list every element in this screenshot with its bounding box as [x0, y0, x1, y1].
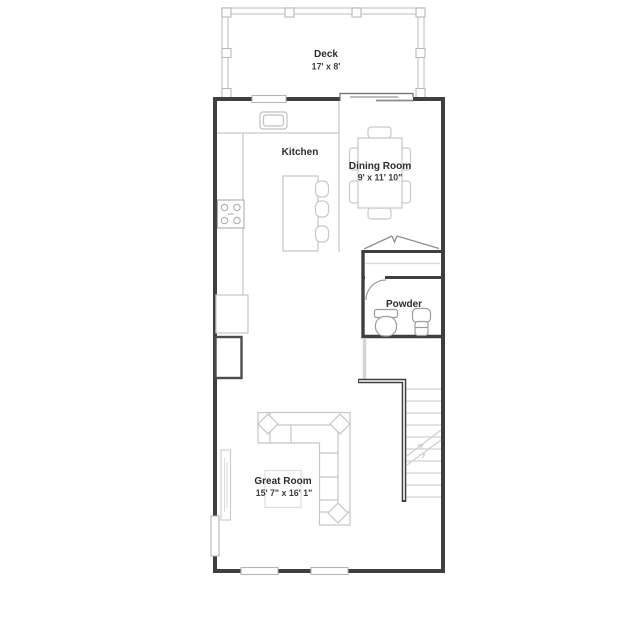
window-top [252, 96, 286, 103]
window-bottom-2 [311, 568, 348, 575]
powder-label: Powder [386, 299, 422, 310]
closet-doors [364, 236, 439, 249]
sliding-door [340, 94, 413, 102]
kitchen-island [283, 176, 318, 251]
toilet [375, 310, 398, 337]
great-room-label: Great Room [254, 476, 311, 487]
refrigerator [216, 295, 248, 333]
dining-label: Dining Room [349, 161, 411, 172]
stairs [358, 381, 441, 502]
powder-door-swing [366, 280, 386, 300]
pantry-closet [216, 337, 242, 378]
kitchen-counters [217, 101, 339, 295]
dining-chair [350, 181, 359, 203]
deck-dims: 17' x 8' [312, 62, 341, 72]
dining-chair [368, 208, 391, 219]
stair-direction-lines [407, 430, 441, 465]
floor-plan: Deck 17' x 8' Kitchen Dining Room 9' x 1… [0, 0, 640, 640]
dining-dims: 9' x 11' 10" [358, 173, 403, 183]
floor-plan-drawing: Deck 17' x 8' Kitchen Dining Room 9' x 1… [0, 0, 640, 640]
deck-label: Deck [314, 49, 338, 60]
window-left [211, 516, 219, 556]
stair-wall [358, 381, 404, 502]
media-console [221, 450, 231, 520]
dining-chair [368, 127, 391, 138]
great-room-dims: 15' 7" x 16' 1" [256, 488, 313, 498]
dining-chair [402, 181, 411, 203]
window-bottom-1 [241, 568, 278, 575]
kitchen-label: Kitchen [282, 147, 319, 158]
island-stools [316, 181, 329, 242]
kitchen-sink [260, 112, 287, 129]
sectional-sofa [258, 413, 350, 526]
powder-sink [413, 309, 431, 336]
stove [218, 200, 245, 228]
